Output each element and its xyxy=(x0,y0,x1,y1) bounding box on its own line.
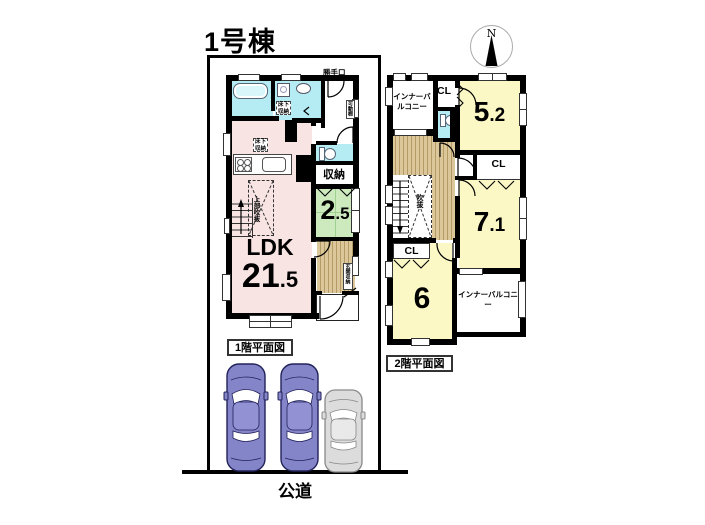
road-line xyxy=(182,470,408,474)
window xyxy=(352,256,359,276)
label-room71-size: 7.1 xyxy=(459,206,520,238)
wall xyxy=(452,332,526,337)
wall xyxy=(311,237,356,241)
window xyxy=(459,268,483,275)
window xyxy=(281,74,301,81)
wall xyxy=(321,80,325,128)
floorplan-page: 1号棟 N 公道 xyxy=(0,0,705,525)
stairs-2f-treads xyxy=(392,175,409,238)
wall xyxy=(433,138,455,142)
toilet-bowl-icon xyxy=(324,148,336,160)
label-room6-size: 6 xyxy=(392,282,452,316)
wall xyxy=(311,122,316,126)
label-void-above: 上部吹抜 xyxy=(251,196,259,222)
label-cl-bottom: CL xyxy=(393,245,430,257)
wall xyxy=(455,150,526,155)
wall xyxy=(316,161,354,165)
window xyxy=(385,185,393,204)
wall xyxy=(387,238,436,243)
road-label: 公道 xyxy=(265,477,325,502)
window xyxy=(519,197,527,240)
page-title: 1号棟 xyxy=(204,20,276,59)
wall xyxy=(316,291,322,295)
window xyxy=(385,206,393,225)
wall xyxy=(342,291,359,295)
window xyxy=(385,261,393,278)
burner-icon xyxy=(244,165,251,172)
wall xyxy=(296,155,311,182)
wall xyxy=(311,258,316,316)
label-void-2f: 吹抜 xyxy=(414,194,424,220)
washer-drum-icon xyxy=(280,86,287,93)
wall xyxy=(455,75,460,88)
label-underfloor-storage-2: 床下収納 xyxy=(253,138,268,152)
label-cl-top: CL xyxy=(433,85,455,97)
window xyxy=(223,133,231,156)
wall xyxy=(453,238,457,243)
washroom-sink-icon xyxy=(296,83,311,94)
window xyxy=(519,93,527,126)
label-underfloor-storage-1: 床下収納 xyxy=(276,101,291,115)
label-entrance-storage: 玄関収納 xyxy=(343,263,353,290)
entrance-porch xyxy=(316,294,359,321)
label-cl-mid: CL xyxy=(477,158,520,170)
window xyxy=(394,129,427,136)
label-ldk-size: 21.5 xyxy=(230,257,310,296)
window xyxy=(411,73,428,81)
wall xyxy=(226,116,279,121)
label-inner-balcony-top: インナーバルコニー xyxy=(390,92,434,112)
window xyxy=(393,73,406,81)
wall xyxy=(285,120,297,142)
label-movable-shelf: 可動棚 xyxy=(346,100,355,119)
window xyxy=(224,218,230,234)
compass-label: N xyxy=(470,27,513,40)
wall xyxy=(311,144,316,242)
window xyxy=(478,73,507,81)
floor1-caption: 1階平面図 xyxy=(227,339,293,356)
window xyxy=(249,315,292,328)
closet-mid-line xyxy=(477,179,520,180)
kitchen-sink-icon xyxy=(262,157,286,172)
wall xyxy=(271,80,275,111)
label-backdoor: 勝手口 xyxy=(323,67,346,78)
label-inner-balcony-bottom: インナーバルコニー xyxy=(456,290,520,310)
label-storage: 収納 xyxy=(314,166,354,182)
window xyxy=(238,74,260,81)
bathtub xyxy=(233,83,268,99)
window xyxy=(411,338,430,346)
label-room52-size: 5.2 xyxy=(459,96,520,128)
wall xyxy=(459,176,474,180)
label-tatami-size: 2.5 xyxy=(315,195,355,226)
wall xyxy=(311,184,356,189)
burner-icon xyxy=(237,165,244,172)
floor2-caption: 2階平面図 xyxy=(386,355,453,372)
wall xyxy=(316,141,337,145)
